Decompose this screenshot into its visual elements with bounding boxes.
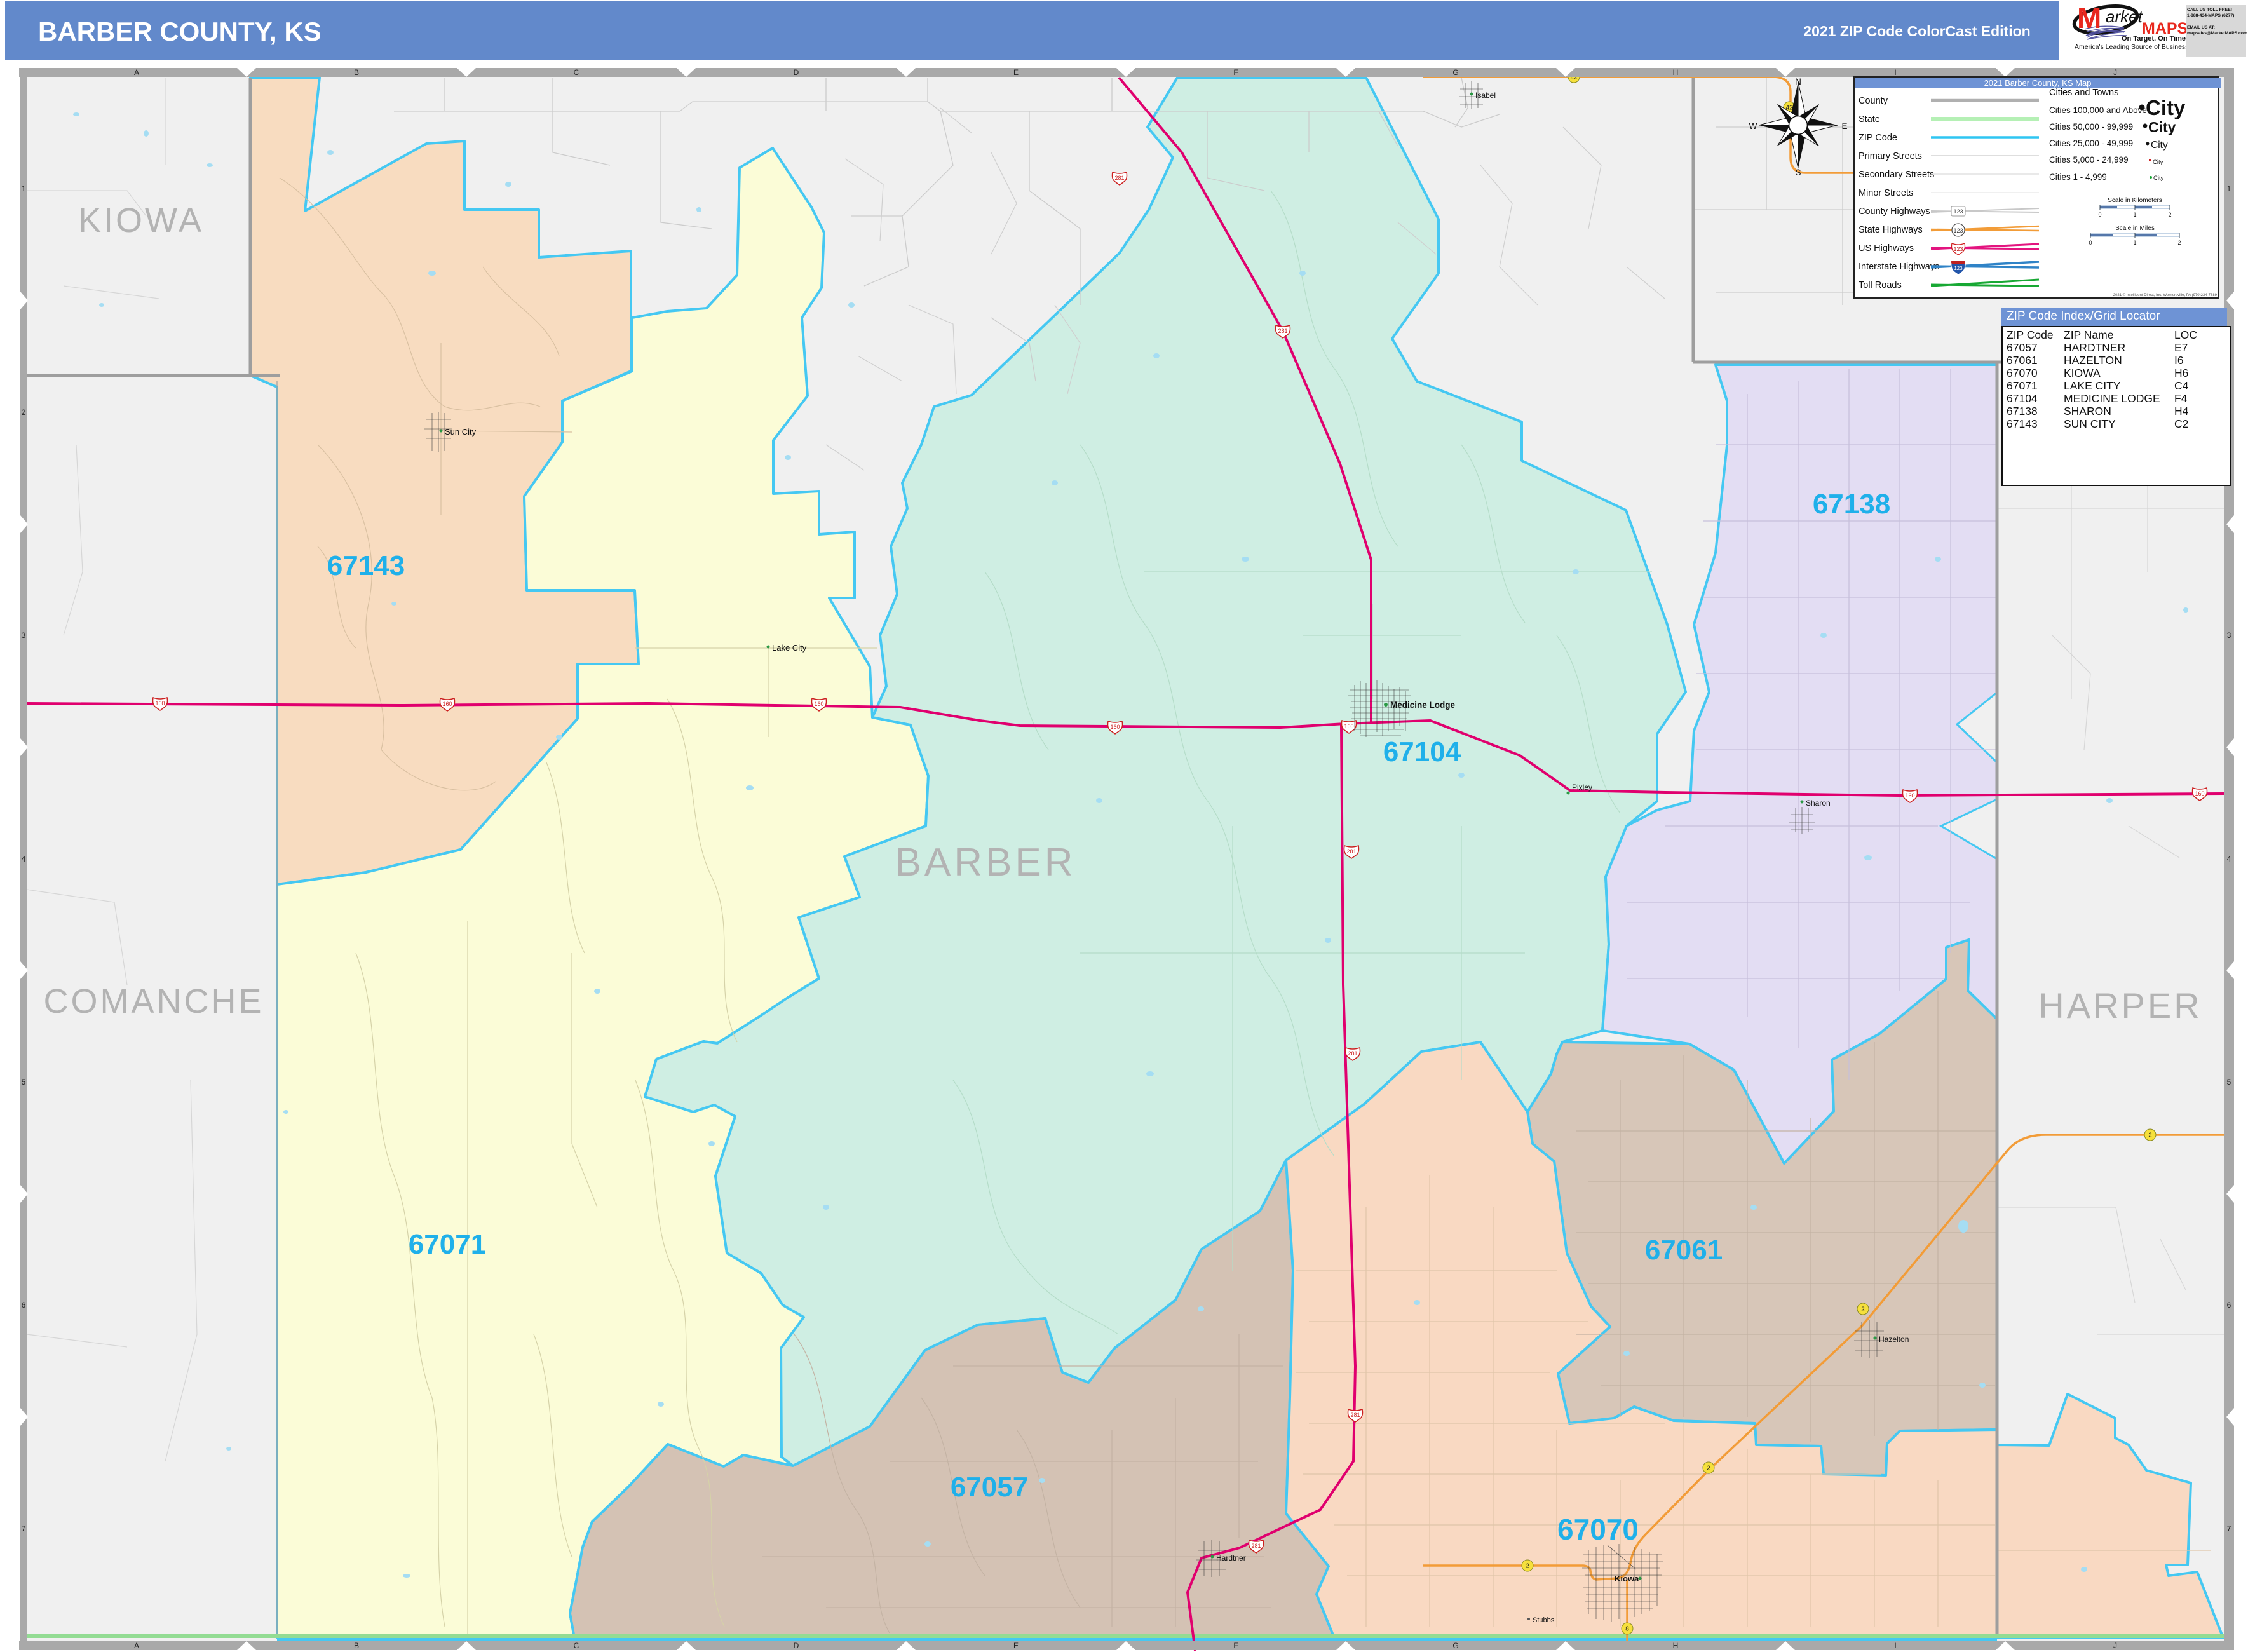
svg-text:Hardtner: Hardtner — [1216, 1554, 1246, 1562]
svg-text:1: 1 — [2227, 184, 2231, 193]
svg-text:C4: C4 — [2174, 379, 2189, 392]
svg-text:Cities 50,000 - 99,999: Cities 50,000 - 99,999 — [2049, 122, 2133, 132]
svg-text:S: S — [1795, 168, 1801, 177]
svg-text:City: City — [2153, 159, 2163, 166]
svg-text:6: 6 — [22, 1301, 26, 1310]
svg-text:Secondary Streets: Secondary Streets — [1859, 170, 1934, 180]
svg-text:Cities 100,000 and Above: Cities 100,000 and Above — [2049, 105, 2147, 115]
svg-text:Cities 25,000 - 49,999: Cities 25,000 - 49,999 — [2049, 139, 2133, 148]
svg-text:Minor Streets: Minor Streets — [1859, 188, 1913, 198]
svg-text:67138: 67138 — [1813, 489, 1890, 520]
svg-text:ZIP Code: ZIP Code — [1859, 133, 1897, 143]
svg-text:5: 5 — [2227, 1078, 2231, 1087]
svg-text:State Highways: State Highways — [1859, 225, 1923, 235]
svg-text:160: 160 — [1110, 724, 1120, 730]
svg-text:COMANCHE: COMANCHE — [43, 982, 264, 1020]
svg-text:2: 2 — [1861, 1306, 1865, 1313]
svg-text:Lake City: Lake City — [772, 643, 807, 653]
svg-text:2: 2 — [22, 408, 26, 417]
svg-text:Isabel: Isabel — [1475, 91, 1496, 100]
svg-text:281: 281 — [1350, 1412, 1360, 1418]
svg-text:B: B — [354, 68, 359, 77]
svg-text:ZIP Name: ZIP Name — [2064, 328, 2113, 341]
svg-text:H: H — [1673, 68, 1679, 77]
svg-text:160: 160 — [442, 701, 452, 707]
svg-text:1: 1 — [22, 184, 26, 193]
svg-text:160: 160 — [814, 701, 823, 707]
svg-text:67104: 67104 — [1383, 736, 1461, 768]
svg-text:Interstate Highways: Interstate Highways — [1859, 262, 1939, 272]
svg-text:Primary Streets: Primary Streets — [1859, 151, 1922, 161]
svg-text:HARDTNER: HARDTNER — [2064, 341, 2125, 354]
svg-text:67104: 67104 — [2007, 392, 2038, 405]
svg-text:Cities 1 - 4,999: Cities 1 - 4,999 — [2049, 172, 2107, 182]
svg-text:City: City — [2148, 119, 2176, 135]
svg-text:2: 2 — [2177, 240, 2181, 246]
svg-text:E: E — [1841, 121, 1847, 131]
svg-text:MEDICINE LODGE: MEDICINE LODGE — [2064, 392, 2160, 405]
svg-text:1: 1 — [2133, 212, 2136, 218]
svg-text:160: 160 — [1344, 723, 1353, 729]
svg-text:281: 281 — [1251, 1543, 1261, 1549]
svg-text:0: 0 — [2089, 240, 2092, 246]
svg-text:A: A — [134, 1641, 139, 1650]
svg-text:67071: 67071 — [2007, 379, 2038, 392]
svg-text:160: 160 — [155, 700, 165, 707]
svg-text:7: 7 — [22, 1524, 26, 1533]
svg-text:123: 123 — [1953, 227, 1963, 234]
svg-text:2: 2 — [1526, 1563, 1529, 1570]
svg-text:B: B — [354, 1641, 359, 1650]
svg-text:Cities and Towns: Cities and Towns — [2049, 88, 2118, 98]
svg-text:D: D — [794, 68, 799, 77]
svg-text:Sun City: Sun City — [445, 427, 477, 437]
svg-text:4: 4 — [22, 855, 26, 863]
svg-text:67061: 67061 — [2007, 354, 2038, 367]
svg-text:281: 281 — [1346, 848, 1356, 855]
svg-text:I: I — [1894, 1641, 1896, 1650]
svg-text:City: City — [2151, 140, 2168, 151]
svg-text:3: 3 — [22, 631, 26, 640]
svg-text:C: C — [574, 68, 579, 77]
svg-text:F4: F4 — [2174, 392, 2188, 405]
svg-text:Cities 5,000 - 24,999: Cities 5,000 - 24,999 — [2049, 155, 2129, 165]
svg-text:J: J — [2113, 68, 2117, 77]
svg-text:67143: 67143 — [2007, 417, 2038, 430]
svg-text:7: 7 — [2227, 1524, 2231, 1533]
svg-text:BARBER: BARBER — [895, 841, 1076, 884]
svg-text:67061: 67061 — [1645, 1235, 1723, 1266]
svg-text:2: 2 — [1707, 1465, 1710, 1472]
svg-text:County: County — [1859, 96, 1888, 106]
svg-text:D: D — [794, 1641, 799, 1650]
svg-text:US Highways: US Highways — [1859, 243, 1914, 254]
svg-text:Pixley: Pixley — [1572, 783, 1592, 792]
svg-text:ZIP Code: ZIP Code — [2007, 328, 2054, 341]
svg-text:E: E — [1013, 1641, 1019, 1650]
svg-text:Medicine Lodge: Medicine Lodge — [1390, 700, 1456, 710]
svg-text:67057: 67057 — [951, 1472, 1028, 1503]
svg-text:G: G — [1452, 68, 1458, 77]
svg-text:1: 1 — [2133, 240, 2136, 246]
svg-text:8: 8 — [1625, 1626, 1629, 1633]
svg-text:A: A — [134, 68, 139, 77]
svg-text:67071: 67071 — [409, 1229, 486, 1260]
svg-text:N: N — [1795, 77, 1801, 86]
svg-text:F: F — [1233, 68, 1238, 77]
svg-text:SUN CITY: SUN CITY — [2064, 417, 2116, 430]
svg-text:67070: 67070 — [2007, 367, 2038, 379]
svg-text:W: W — [1749, 121, 1757, 131]
svg-text:HAZELTON: HAZELTON — [2064, 354, 2122, 367]
svg-text:State: State — [1859, 114, 1880, 125]
svg-text:2: 2 — [2168, 212, 2171, 218]
svg-text:160: 160 — [1905, 792, 1914, 799]
svg-text:H4: H4 — [2174, 405, 2189, 417]
svg-text:281: 281 — [1114, 175, 1124, 181]
svg-text:2021 © Intelligent Direct, Inc: 2021 © Intelligent Direct, Inc. Wernersv… — [2113, 293, 2218, 297]
svg-text:KIOWA: KIOWA — [2064, 367, 2101, 379]
svg-text:County Highways: County Highways — [1859, 207, 1930, 217]
svg-text:Sharon: Sharon — [1806, 799, 1831, 808]
svg-text:E7: E7 — [2174, 341, 2188, 354]
svg-text:Scale in Kilometers: Scale in Kilometers — [2108, 197, 2162, 204]
svg-text:E: E — [1013, 68, 1019, 77]
svg-text:5: 5 — [22, 1078, 26, 1087]
svg-text:SHARON: SHARON — [2064, 405, 2111, 417]
svg-text:67057: 67057 — [2007, 341, 2038, 354]
svg-text:3: 3 — [2227, 631, 2231, 640]
svg-text:0: 0 — [2098, 212, 2101, 218]
svg-text:F: F — [1233, 1641, 1238, 1650]
svg-text:City: City — [2153, 175, 2164, 182]
svg-text:LAKE CITY: LAKE CITY — [2064, 379, 2121, 392]
svg-text:67070: 67070 — [1557, 1513, 1639, 1546]
svg-text:67138: 67138 — [2007, 405, 2038, 417]
svg-text:Hazelton: Hazelton — [1879, 1335, 1909, 1344]
svg-text:J: J — [2113, 1641, 2117, 1650]
svg-text:2: 2 — [2148, 1132, 2152, 1139]
svg-text:H: H — [1673, 1641, 1679, 1650]
svg-text:Scale in Miles: Scale in Miles — [2115, 225, 2155, 232]
svg-text:I: I — [1894, 68, 1896, 77]
svg-text:I6: I6 — [2174, 354, 2184, 367]
svg-text:281: 281 — [1348, 1050, 1357, 1057]
svg-text:Toll Roads: Toll Roads — [1859, 280, 1902, 290]
svg-text:Kiowa: Kiowa — [1615, 1574, 1639, 1583]
svg-text:160: 160 — [2195, 790, 2204, 797]
svg-text:6: 6 — [2227, 1301, 2231, 1310]
svg-text:H6: H6 — [2174, 367, 2188, 379]
svg-text:123: 123 — [1953, 246, 1963, 252]
svg-text:KIOWA: KIOWA — [78, 201, 204, 240]
svg-text:281: 281 — [1278, 328, 1287, 334]
svg-text:123: 123 — [1953, 208, 1963, 215]
svg-text:G: G — [1452, 1641, 1458, 1650]
svg-text:LOC: LOC — [2174, 328, 2197, 341]
svg-text:HARPER: HARPER — [2038, 985, 2202, 1026]
svg-text:4: 4 — [2227, 855, 2231, 863]
svg-text:City: City — [2146, 96, 2186, 119]
svg-text:C: C — [574, 1641, 579, 1650]
svg-text:Stubbs: Stubbs — [1533, 1616, 1555, 1624]
svg-text:2021 Barber County, KS Map: 2021 Barber County, KS Map — [1984, 78, 2092, 88]
svg-text:C2: C2 — [2174, 417, 2188, 430]
svg-text:123: 123 — [1954, 266, 1963, 271]
svg-text:67143: 67143 — [327, 550, 405, 581]
